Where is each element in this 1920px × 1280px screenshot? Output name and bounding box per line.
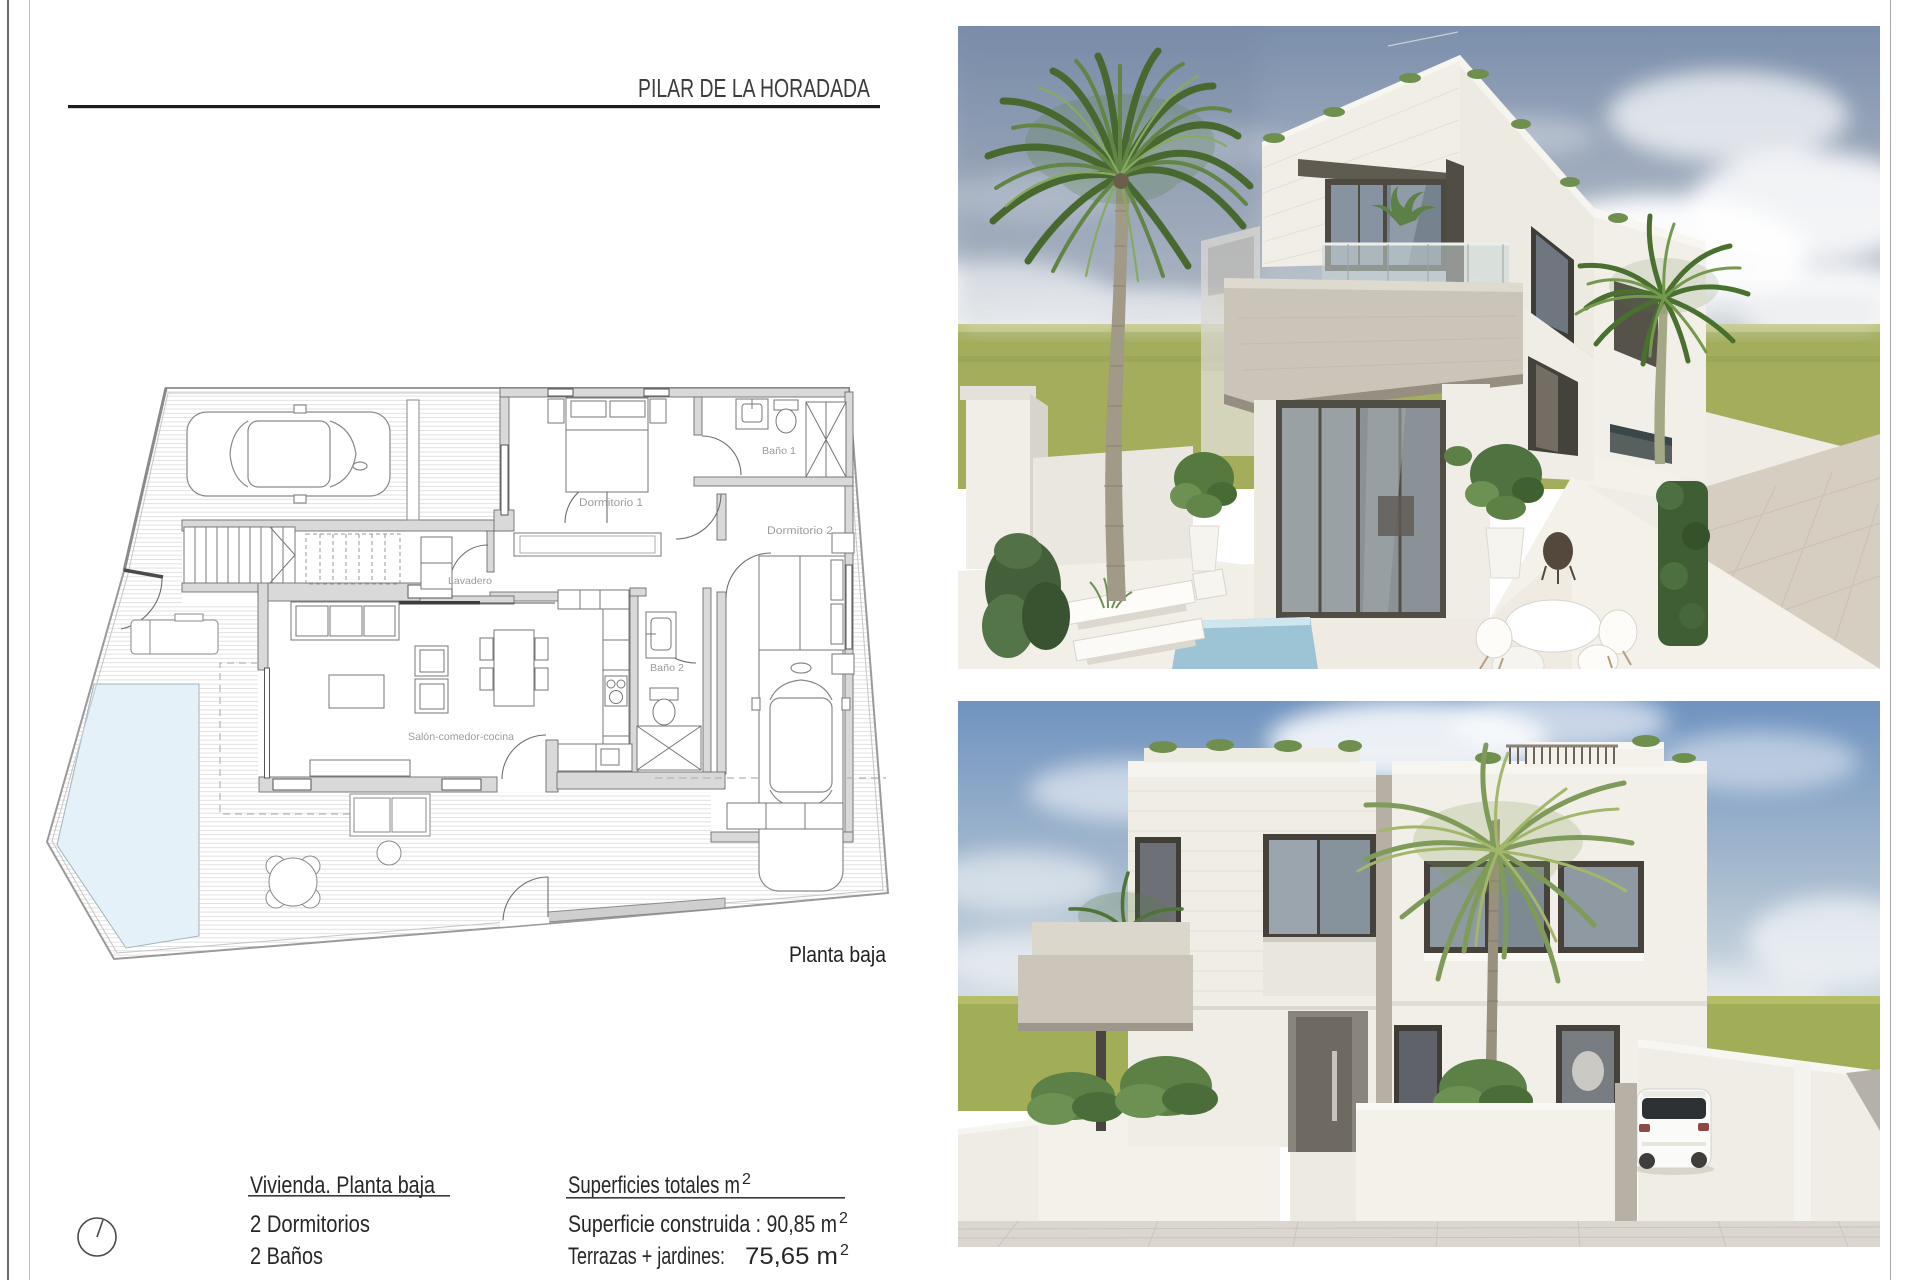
svg-text:Terrazas + jardines:: Terrazas + jardines: bbox=[568, 1243, 725, 1270]
svg-text:2: 2 bbox=[839, 1210, 848, 1227]
svg-text:2: 2 bbox=[742, 1171, 751, 1188]
svg-text:Vivienda. Planta baja: Vivienda. Planta baja bbox=[250, 1172, 436, 1199]
svg-text:Lavadero: Lavadero bbox=[448, 576, 492, 587]
svg-text:75,65 m: 75,65 m bbox=[745, 1243, 838, 1270]
svg-text:Salón-comedor-cocina: Salón-comedor-cocina bbox=[408, 731, 514, 743]
svg-text:Baño 2: Baño 2 bbox=[650, 663, 684, 674]
svg-text:Superficies totales m: Superficies totales m bbox=[568, 1172, 740, 1199]
svg-text:Dormitorio 1: Dormitorio 1 bbox=[579, 497, 643, 509]
svg-text:PILAR DE LA HORADADA: PILAR DE LA HORADADA bbox=[638, 73, 870, 103]
svg-text:Superficie construida : 90,85: Superficie construida : 90,85 m bbox=[568, 1211, 837, 1238]
svg-text:Planta baja: Planta baja bbox=[789, 942, 887, 967]
svg-text:2: 2 bbox=[840, 1242, 849, 1259]
svg-text:Baño 1: Baño 1 bbox=[762, 446, 796, 457]
svg-text:2 Baños: 2 Baños bbox=[250, 1243, 323, 1270]
svg-text:Dormitorio 2: Dormitorio 2 bbox=[767, 525, 833, 537]
svg-text:2 Dormitorios: 2 Dormitorios bbox=[250, 1211, 370, 1238]
